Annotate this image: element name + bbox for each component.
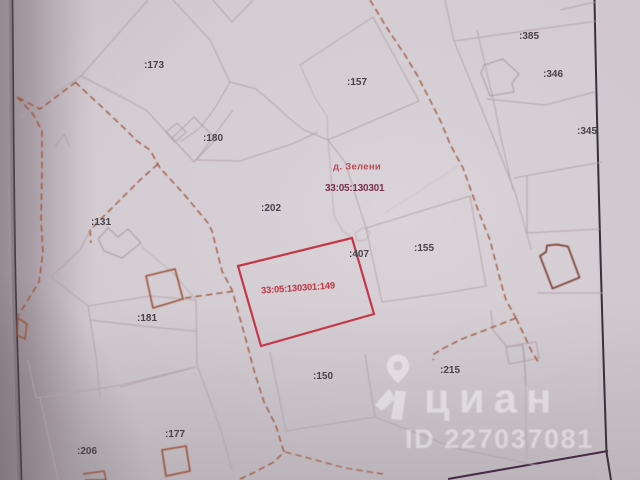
svg-text::345: :345 xyxy=(577,126,597,137)
svg-text:ID 227037081: ID 227037081 xyxy=(405,424,594,454)
svg-text::177: :177 xyxy=(165,429,185,440)
svg-text::202: :202 xyxy=(261,203,281,214)
svg-text::173: :173 xyxy=(144,60,164,71)
svg-text:33:05:130301: 33:05:130301 xyxy=(325,183,385,194)
svg-text::150: :150 xyxy=(313,371,333,382)
svg-text::407: :407 xyxy=(349,249,369,260)
svg-text::385: :385 xyxy=(519,31,539,42)
svg-text:д. Зелени: д. Зелени xyxy=(333,162,381,173)
svg-text::131: :131 xyxy=(91,217,111,228)
svg-text::181: :181 xyxy=(137,313,157,324)
svg-text:циан: циан xyxy=(424,375,560,422)
svg-text::155: :155 xyxy=(414,243,434,254)
svg-text::346: :346 xyxy=(543,69,563,80)
svg-text::180: :180 xyxy=(203,133,223,144)
svg-text::157: :157 xyxy=(347,77,367,88)
svg-text::206: :206 xyxy=(77,446,97,457)
